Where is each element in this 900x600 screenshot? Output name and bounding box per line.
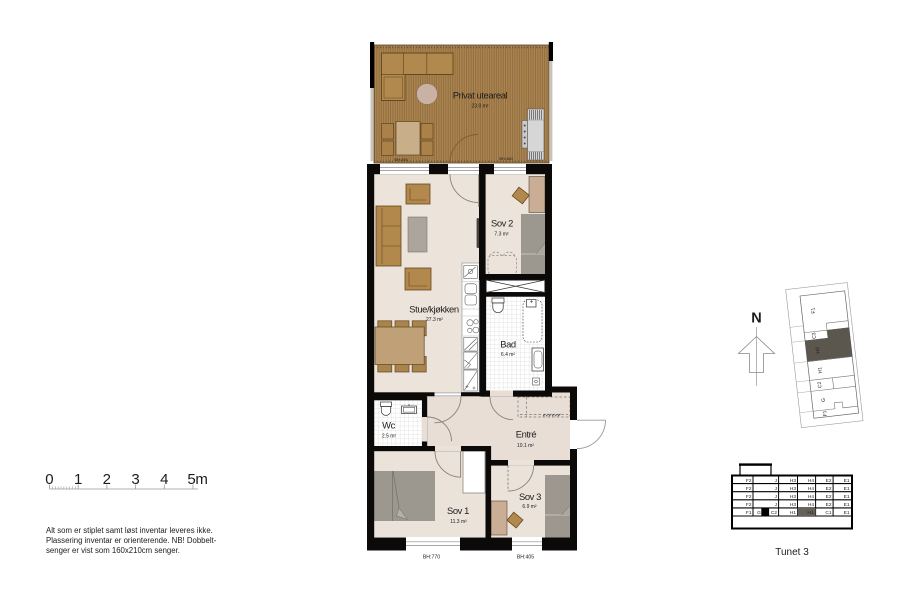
svg-text:E1: E1 xyxy=(844,486,850,492)
svg-text:E2: E2 xyxy=(826,494,832,500)
svg-text:E1: E1 xyxy=(844,494,850,500)
svg-text:BH:770: BH:770 xyxy=(423,555,440,561)
svg-text:H3: H3 xyxy=(790,494,796,500)
svg-text:senger er vist som 160x210cm s: senger er vist som 160x210cm senger. xyxy=(46,546,180,555)
svg-text:H3: H3 xyxy=(790,502,796,508)
svg-text:Bad: Bad xyxy=(500,339,516,350)
svg-text:F2: F2 xyxy=(746,486,752,492)
svg-text:E2: E2 xyxy=(826,502,832,508)
svg-text:BH:460: BH:460 xyxy=(499,156,513,161)
svg-text:H3: H3 xyxy=(790,486,796,492)
svg-text:2.5 m²: 2.5 m² xyxy=(382,434,397,440)
svg-text:C2: C2 xyxy=(817,381,824,388)
svg-text:7.3 m²: 7.3 m² xyxy=(494,232,509,238)
svg-text:E2: E2 xyxy=(826,478,832,484)
svg-text:E2: E2 xyxy=(826,486,832,492)
svg-text:H1: H1 xyxy=(817,366,824,373)
svg-text:Wc: Wc xyxy=(382,420,395,431)
svg-text:E1: E1 xyxy=(844,478,850,484)
svg-text:Sov 3: Sov 3 xyxy=(519,491,541,502)
svg-text:E1: E1 xyxy=(844,510,850,516)
svg-text:F2: F2 xyxy=(746,502,752,508)
svg-text:C2: C2 xyxy=(771,510,777,516)
svg-text:H4: H4 xyxy=(808,494,814,500)
svg-text:27.3 m²: 27.3 m² xyxy=(426,317,443,323)
svg-text:F2: F2 xyxy=(746,494,752,500)
svg-text:F1: F1 xyxy=(810,307,817,314)
svg-text:BH:450: BH:450 xyxy=(394,157,408,162)
svg-text:H1: H1 xyxy=(807,510,813,516)
svg-text:H4: H4 xyxy=(808,486,814,492)
svg-text:6.4 m²: 6.4 m² xyxy=(501,352,516,358)
svg-text:Entré: Entré xyxy=(516,429,537,440)
svg-text:E1: E1 xyxy=(844,502,850,508)
svg-text:C1: C1 xyxy=(825,510,831,516)
svg-text:10.1 m²: 10.1 m² xyxy=(517,443,534,449)
svg-text:N: N xyxy=(751,311,761,327)
svg-text:11.3 m²: 11.3 m² xyxy=(450,519,467,525)
svg-text:Sov 2: Sov 2 xyxy=(491,218,513,229)
svg-text:5m: 5m xyxy=(187,471,207,488)
svg-text:C3: C3 xyxy=(811,332,818,339)
svg-text:6.9 m²: 6.9 m² xyxy=(522,504,537,510)
svg-text:F1: F1 xyxy=(746,510,752,516)
svg-text:G: G xyxy=(821,398,827,403)
svg-text:H4: H4 xyxy=(808,502,814,508)
svg-text:Alt som er stiplet samt løst i: Alt som er stiplet samt løst inventar le… xyxy=(46,526,213,535)
svg-text:Sov 1: Sov 1 xyxy=(447,505,469,516)
svg-text:H2: H2 xyxy=(815,347,822,354)
svg-text:H4: H4 xyxy=(808,478,814,484)
svg-text:Privat uteareal: Privat uteareal xyxy=(453,90,508,101)
svg-text:23.0 m²: 23.0 m² xyxy=(472,104,489,110)
svg-text:F1: F1 xyxy=(822,410,829,417)
svg-text:Stue/kjøkken: Stue/kjøkken xyxy=(409,304,459,315)
svg-text:Tunet 3: Tunet 3 xyxy=(775,547,809,558)
svg-text:BH:405: BH:405 xyxy=(517,555,534,561)
svg-text:G: G xyxy=(757,510,761,516)
svg-text:Plassering inventar er oriente: Plassering inventar er orienterende. NB!… xyxy=(46,536,217,545)
svg-text:H1: H1 xyxy=(790,510,796,516)
svg-text:F2: F2 xyxy=(746,478,752,484)
svg-text:H3: H3 xyxy=(790,478,796,484)
